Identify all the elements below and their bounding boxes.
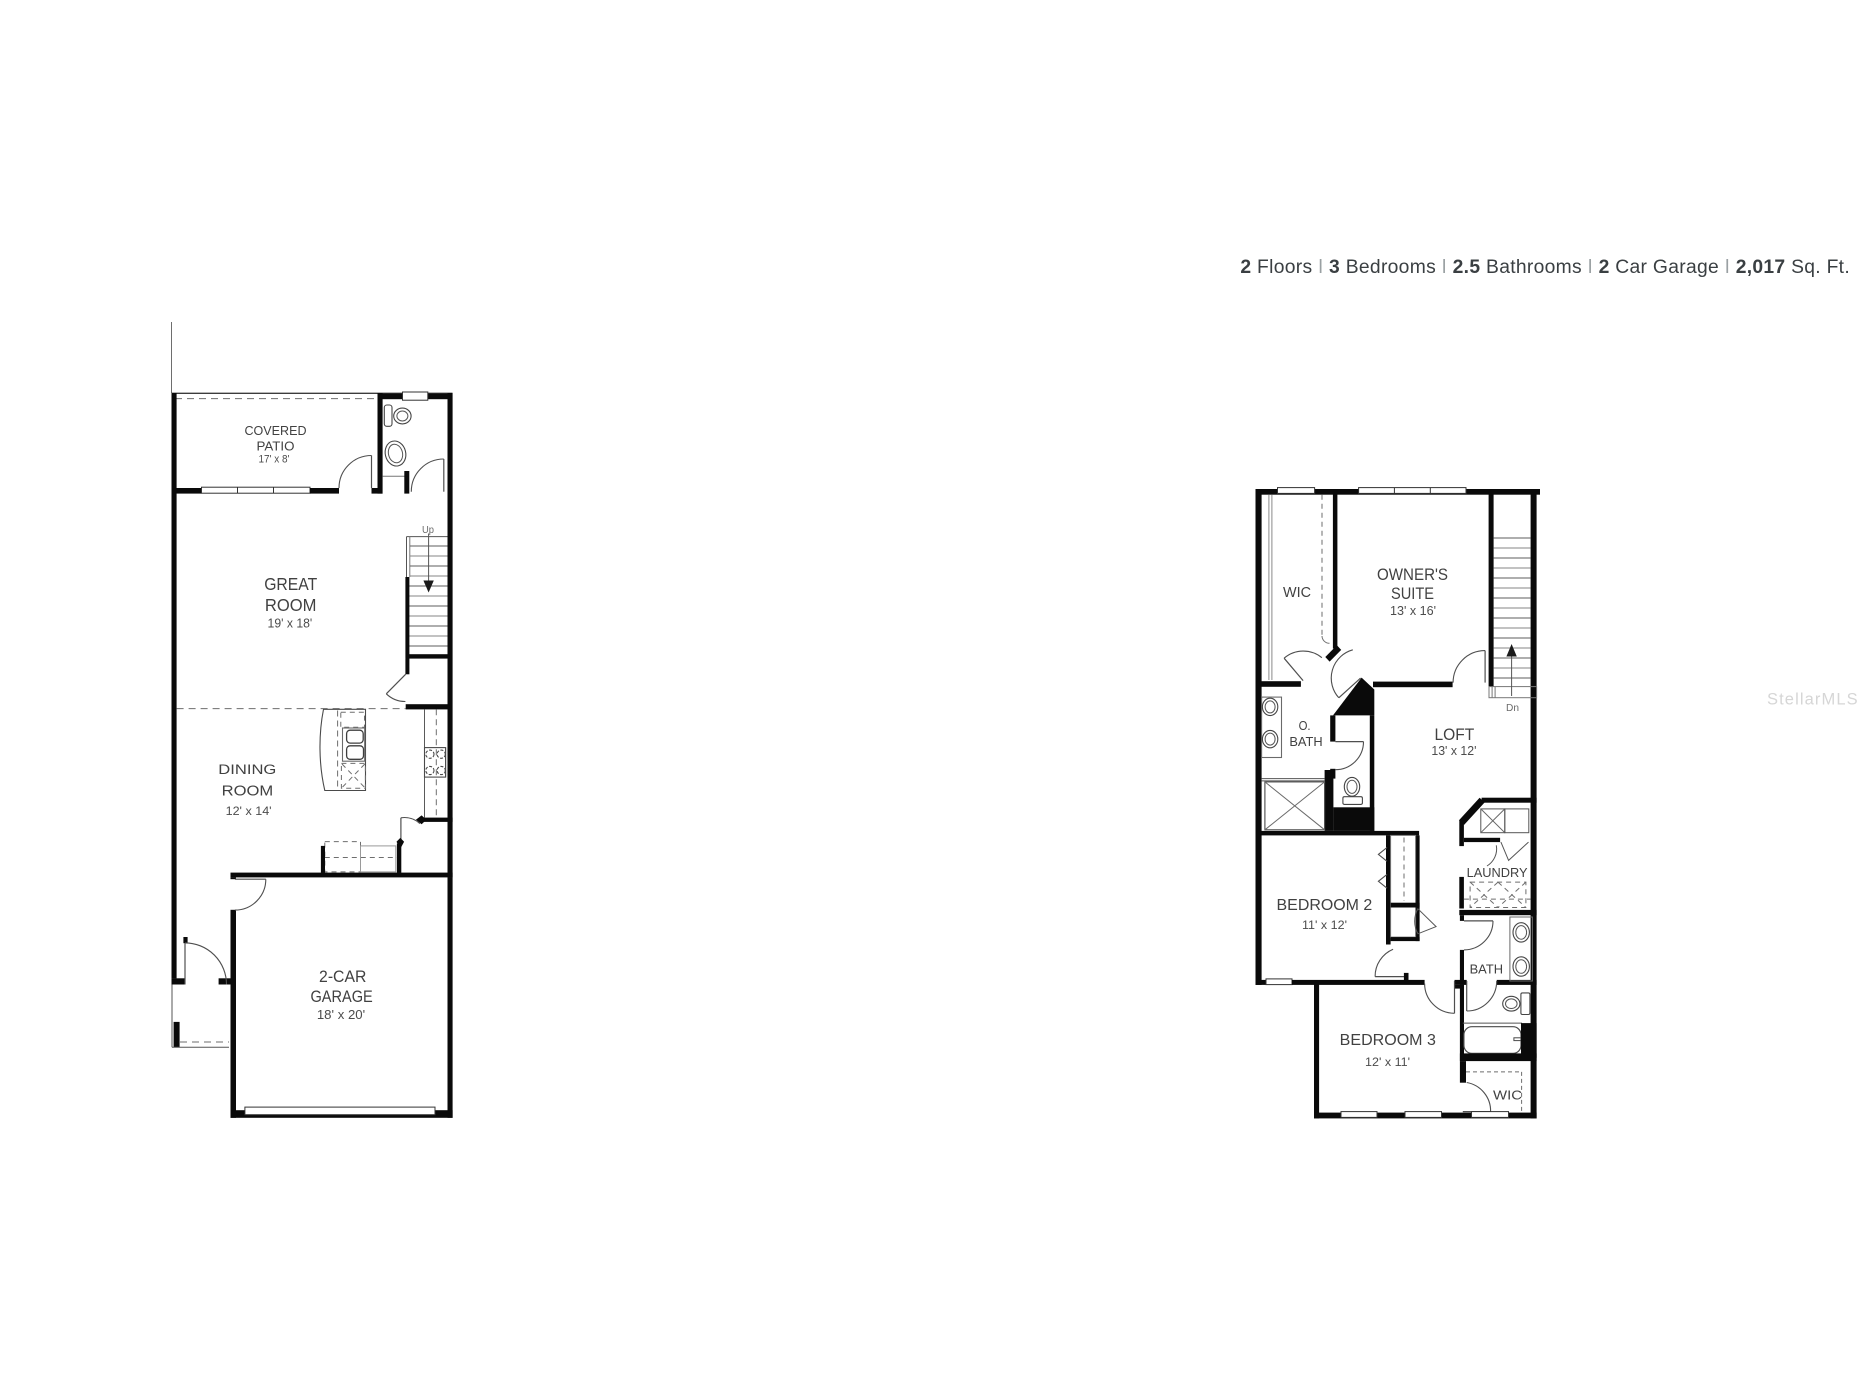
svg-text:12' x 11': 12' x 11' xyxy=(1365,1055,1410,1069)
svg-text:13' x 12': 13' x 12' xyxy=(1431,743,1476,758)
svg-text:19' x 18': 19' x 18' xyxy=(268,616,313,631)
svg-text:ROOM: ROOM xyxy=(222,784,274,800)
svg-text:PATIO: PATIO xyxy=(257,439,295,453)
svg-text:BEDROOM 2: BEDROOM 2 xyxy=(1277,897,1373,914)
svg-text:Up: Up xyxy=(422,524,434,536)
svg-text:2-CAR: 2-CAR xyxy=(319,967,366,986)
svg-text:13' x 16': 13' x 16' xyxy=(1390,603,1436,618)
svg-text:WIC: WIC xyxy=(1283,585,1311,601)
svg-text:BATH: BATH xyxy=(1289,735,1322,749)
svg-text:O.: O. xyxy=(1299,719,1311,733)
svg-text:BEDROOM 3: BEDROOM 3 xyxy=(1340,1032,1436,1049)
svg-text:OWNER'S: OWNER'S xyxy=(1377,565,1448,584)
svg-text:StellarMLS: StellarMLS xyxy=(1767,691,1859,709)
svg-text:BATH: BATH xyxy=(1470,962,1503,976)
svg-text:2 Floors ǀ 3 Bedrooms ǀ 2.5 Ba: 2 Floors ǀ 3 Bedrooms ǀ 2.5 Bathrooms ǀ … xyxy=(1240,257,1850,278)
svg-text:LOFT: LOFT xyxy=(1435,725,1475,744)
svg-text:DINING: DINING xyxy=(218,762,276,778)
svg-text:COVERED: COVERED xyxy=(245,424,307,438)
svg-text:GREAT: GREAT xyxy=(264,574,317,594)
svg-text:ROOM: ROOM xyxy=(265,595,317,615)
svg-text:LAUNDRY: LAUNDRY xyxy=(1467,866,1529,880)
svg-text:18' x 20': 18' x 20' xyxy=(317,1007,365,1022)
svg-text:Dn: Dn xyxy=(1506,702,1519,714)
svg-text:12' x 14': 12' x 14' xyxy=(226,804,272,818)
svg-text:GARAGE: GARAGE xyxy=(310,987,372,1006)
svg-text:17' x 8': 17' x 8' xyxy=(259,454,290,466)
svg-text:11' x 12': 11' x 12' xyxy=(1302,918,1347,932)
svg-text:WIC: WIC xyxy=(1493,1088,1522,1102)
svg-text:SUITE: SUITE xyxy=(1391,584,1434,603)
